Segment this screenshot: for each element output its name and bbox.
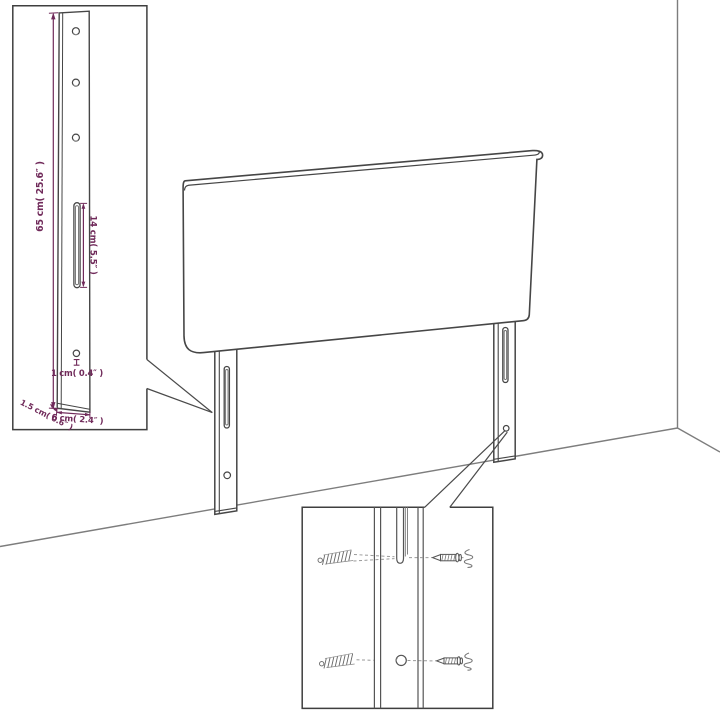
- right-leg-screw-hole: [503, 426, 509, 432]
- screw-head-cap: [459, 554, 461, 560]
- left-leg: [215, 336, 237, 514]
- left-leg-slot-inner: [226, 370, 228, 426]
- post-slot-inner: [76, 206, 79, 285]
- hole-dimension-label: 1 cm( 0.4″ ): [51, 368, 103, 378]
- post-drawing: [57, 11, 90, 412]
- left-leg-screw-hole: [224, 472, 231, 479]
- screw-head: [456, 553, 459, 562]
- fixing-detail-box: [302, 507, 493, 708]
- right-leg-slot-inner: [504, 331, 506, 380]
- headboard-assembly-diagram: 65 cm( 25.6″ ) 14 cm( 5.5″ ) 1 cm( 0.4″ …: [0, 0, 720, 720]
- headboard-panel: [183, 151, 543, 353]
- screw-head-cap: [460, 658, 462, 664]
- diagram-canvas: 65 cm( 25.6″ ) 14 cm( 5.5″ ) 1 cm( 0.4″ …: [0, 0, 720, 720]
- height-dimension-label: 65 cm( 25.6″ ): [35, 161, 46, 232]
- slot-dimension-label: 14 cm( 5.5″ ): [88, 215, 98, 275]
- post-small-hole: [73, 350, 79, 356]
